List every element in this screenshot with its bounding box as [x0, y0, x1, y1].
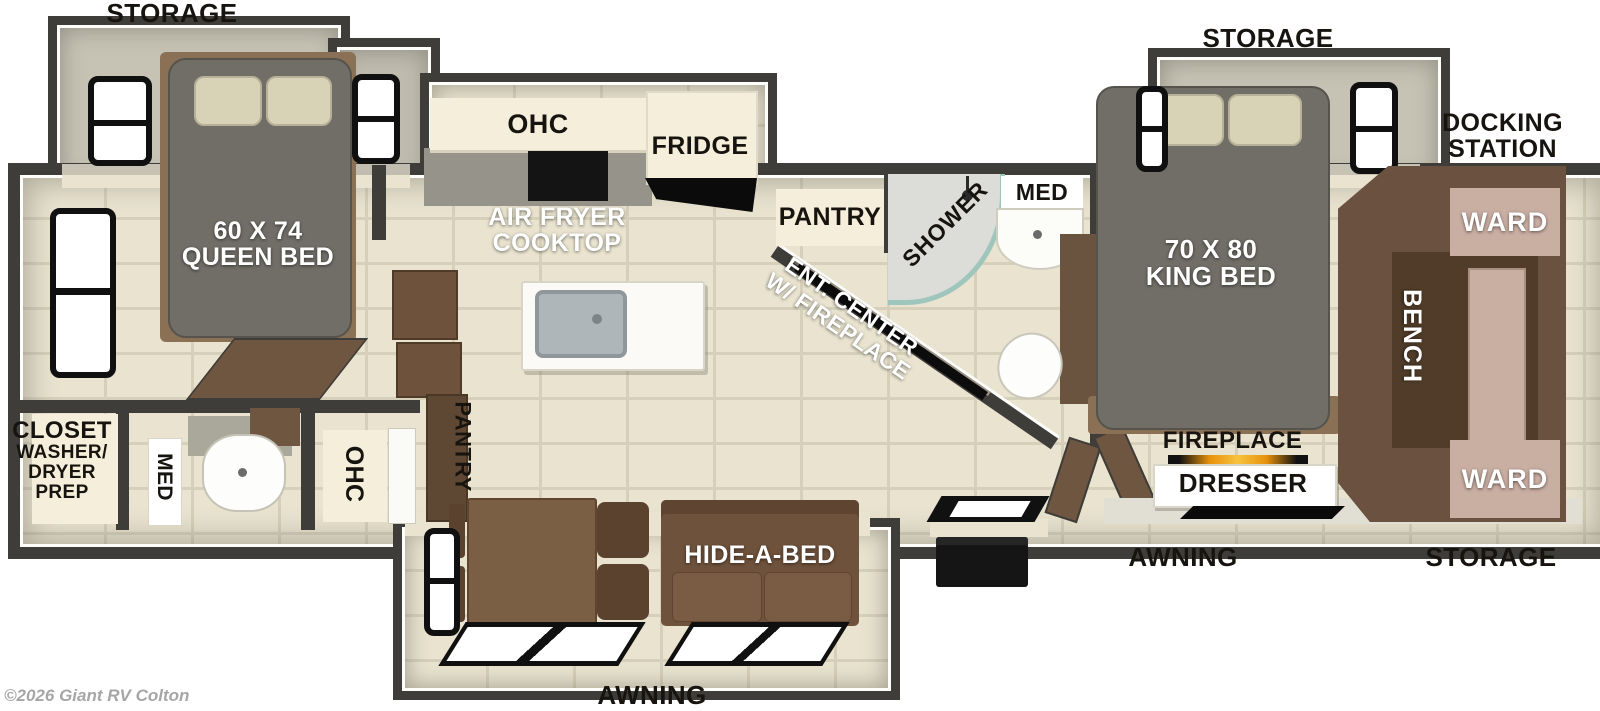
window-rear-slideout-left	[1136, 86, 1168, 172]
hide-a-bed-label: HIDE-A-BED	[664, 542, 856, 568]
wall-bath-ohc	[301, 400, 315, 530]
bath-counter	[1060, 234, 1096, 404]
window-dinette-bottom-left	[438, 622, 645, 666]
wardrobe-top-label: WARD	[1450, 188, 1560, 256]
dresser-legs	[1180, 506, 1345, 519]
wardrobe-bottom-label: WARD	[1450, 440, 1560, 518]
docking-line1: DOCKING	[1425, 110, 1580, 136]
dresser-label: DRESSER	[1153, 464, 1333, 504]
wall-bottom-rooms	[16, 400, 420, 413]
bath-sink-drain	[1033, 230, 1042, 239]
window-front-left-wall	[50, 208, 116, 378]
entry-steps-outside	[936, 537, 1028, 587]
king-bed-type: KING BED	[1096, 263, 1326, 290]
front-med-label: MED	[153, 434, 175, 520]
floorplan-canvas: 60 X 74 QUEEN BED CLOSET WASHER/ DRYER P…	[0, 0, 1600, 711]
label-docking-station: DOCKING STATION	[1425, 110, 1580, 163]
air-fryer-label: AIR FRYER COOKTOP	[462, 204, 652, 257]
king-pillow-right	[1228, 94, 1302, 146]
wall-bedroom-kitchen	[372, 165, 386, 240]
med-label: MED	[1001, 176, 1083, 208]
label-storage-front: STORAGE	[92, 0, 252, 27]
closet-title: CLOSET	[4, 418, 120, 443]
queen-bed-size: 60 X 74	[168, 218, 348, 244]
entry-step-tread	[949, 501, 1030, 517]
label-awning-rear: AWNING	[1103, 544, 1263, 571]
front-bath-sink-drain	[238, 468, 247, 477]
cooktop	[528, 151, 608, 201]
dinette-chair-bottom	[597, 564, 649, 620]
bench-panel	[1468, 268, 1526, 450]
island-sink	[535, 290, 627, 358]
queen-bed-type: QUEEN BED	[168, 244, 348, 270]
window-front-slideout	[88, 76, 152, 166]
bench-label: BENCH	[1399, 271, 1425, 401]
island-sink-drain	[592, 314, 602, 324]
sofa-cushion-right	[764, 572, 852, 622]
pantry-label: PANTRY	[776, 189, 884, 246]
air-fryer-line2: COOKTOP	[462, 230, 652, 256]
king-bed-size: 70 X 80	[1096, 236, 1326, 263]
kitchen-hutch-top	[392, 270, 458, 340]
queen-pillow-right	[266, 76, 332, 126]
window-rear-slideout-right	[1350, 82, 1398, 174]
front-ohc-counter	[388, 428, 416, 524]
label-awning-main: AWNING	[572, 682, 732, 709]
label-storage-rear-bottom: STORAGE	[1411, 544, 1571, 571]
queen-pillow-left	[194, 76, 262, 126]
dinette-chair-top	[597, 502, 649, 558]
fridge-label: FRIDGE	[646, 101, 754, 191]
fireplace-label: FIREPLACE	[1150, 428, 1315, 453]
sofa-cushion-left	[672, 572, 762, 622]
front-ohc-label: OHC	[341, 432, 367, 516]
washer-line1: WASHER/	[4, 443, 120, 463]
kitchen-ohc-label: OHC	[430, 98, 646, 150]
kitchen-hutch-bottom	[396, 342, 462, 398]
king-bed-label: 70 X 80 KING BED	[1096, 236, 1326, 291]
tall-pantry-label: PANTRY	[451, 392, 474, 502]
window-dinette-bottom-right	[664, 622, 849, 666]
washer-line2: DRYER	[4, 463, 120, 483]
closet-label: CLOSET WASHER/ DRYER PREP	[4, 418, 120, 503]
air-fryer-line1: AIR FRYER	[462, 204, 652, 230]
queen-bed-label: 60 X 74 QUEEN BED	[168, 218, 348, 271]
watermark: ©2026 Giant RV Colton	[4, 686, 189, 706]
docking-line2: STATION	[1425, 136, 1580, 162]
washer-line3: PREP	[4, 483, 120, 503]
window-front-cap	[352, 74, 400, 164]
window-dinette-left	[424, 528, 460, 636]
label-storage-rear-top: STORAGE	[1188, 25, 1348, 52]
dinette-table	[467, 498, 597, 634]
